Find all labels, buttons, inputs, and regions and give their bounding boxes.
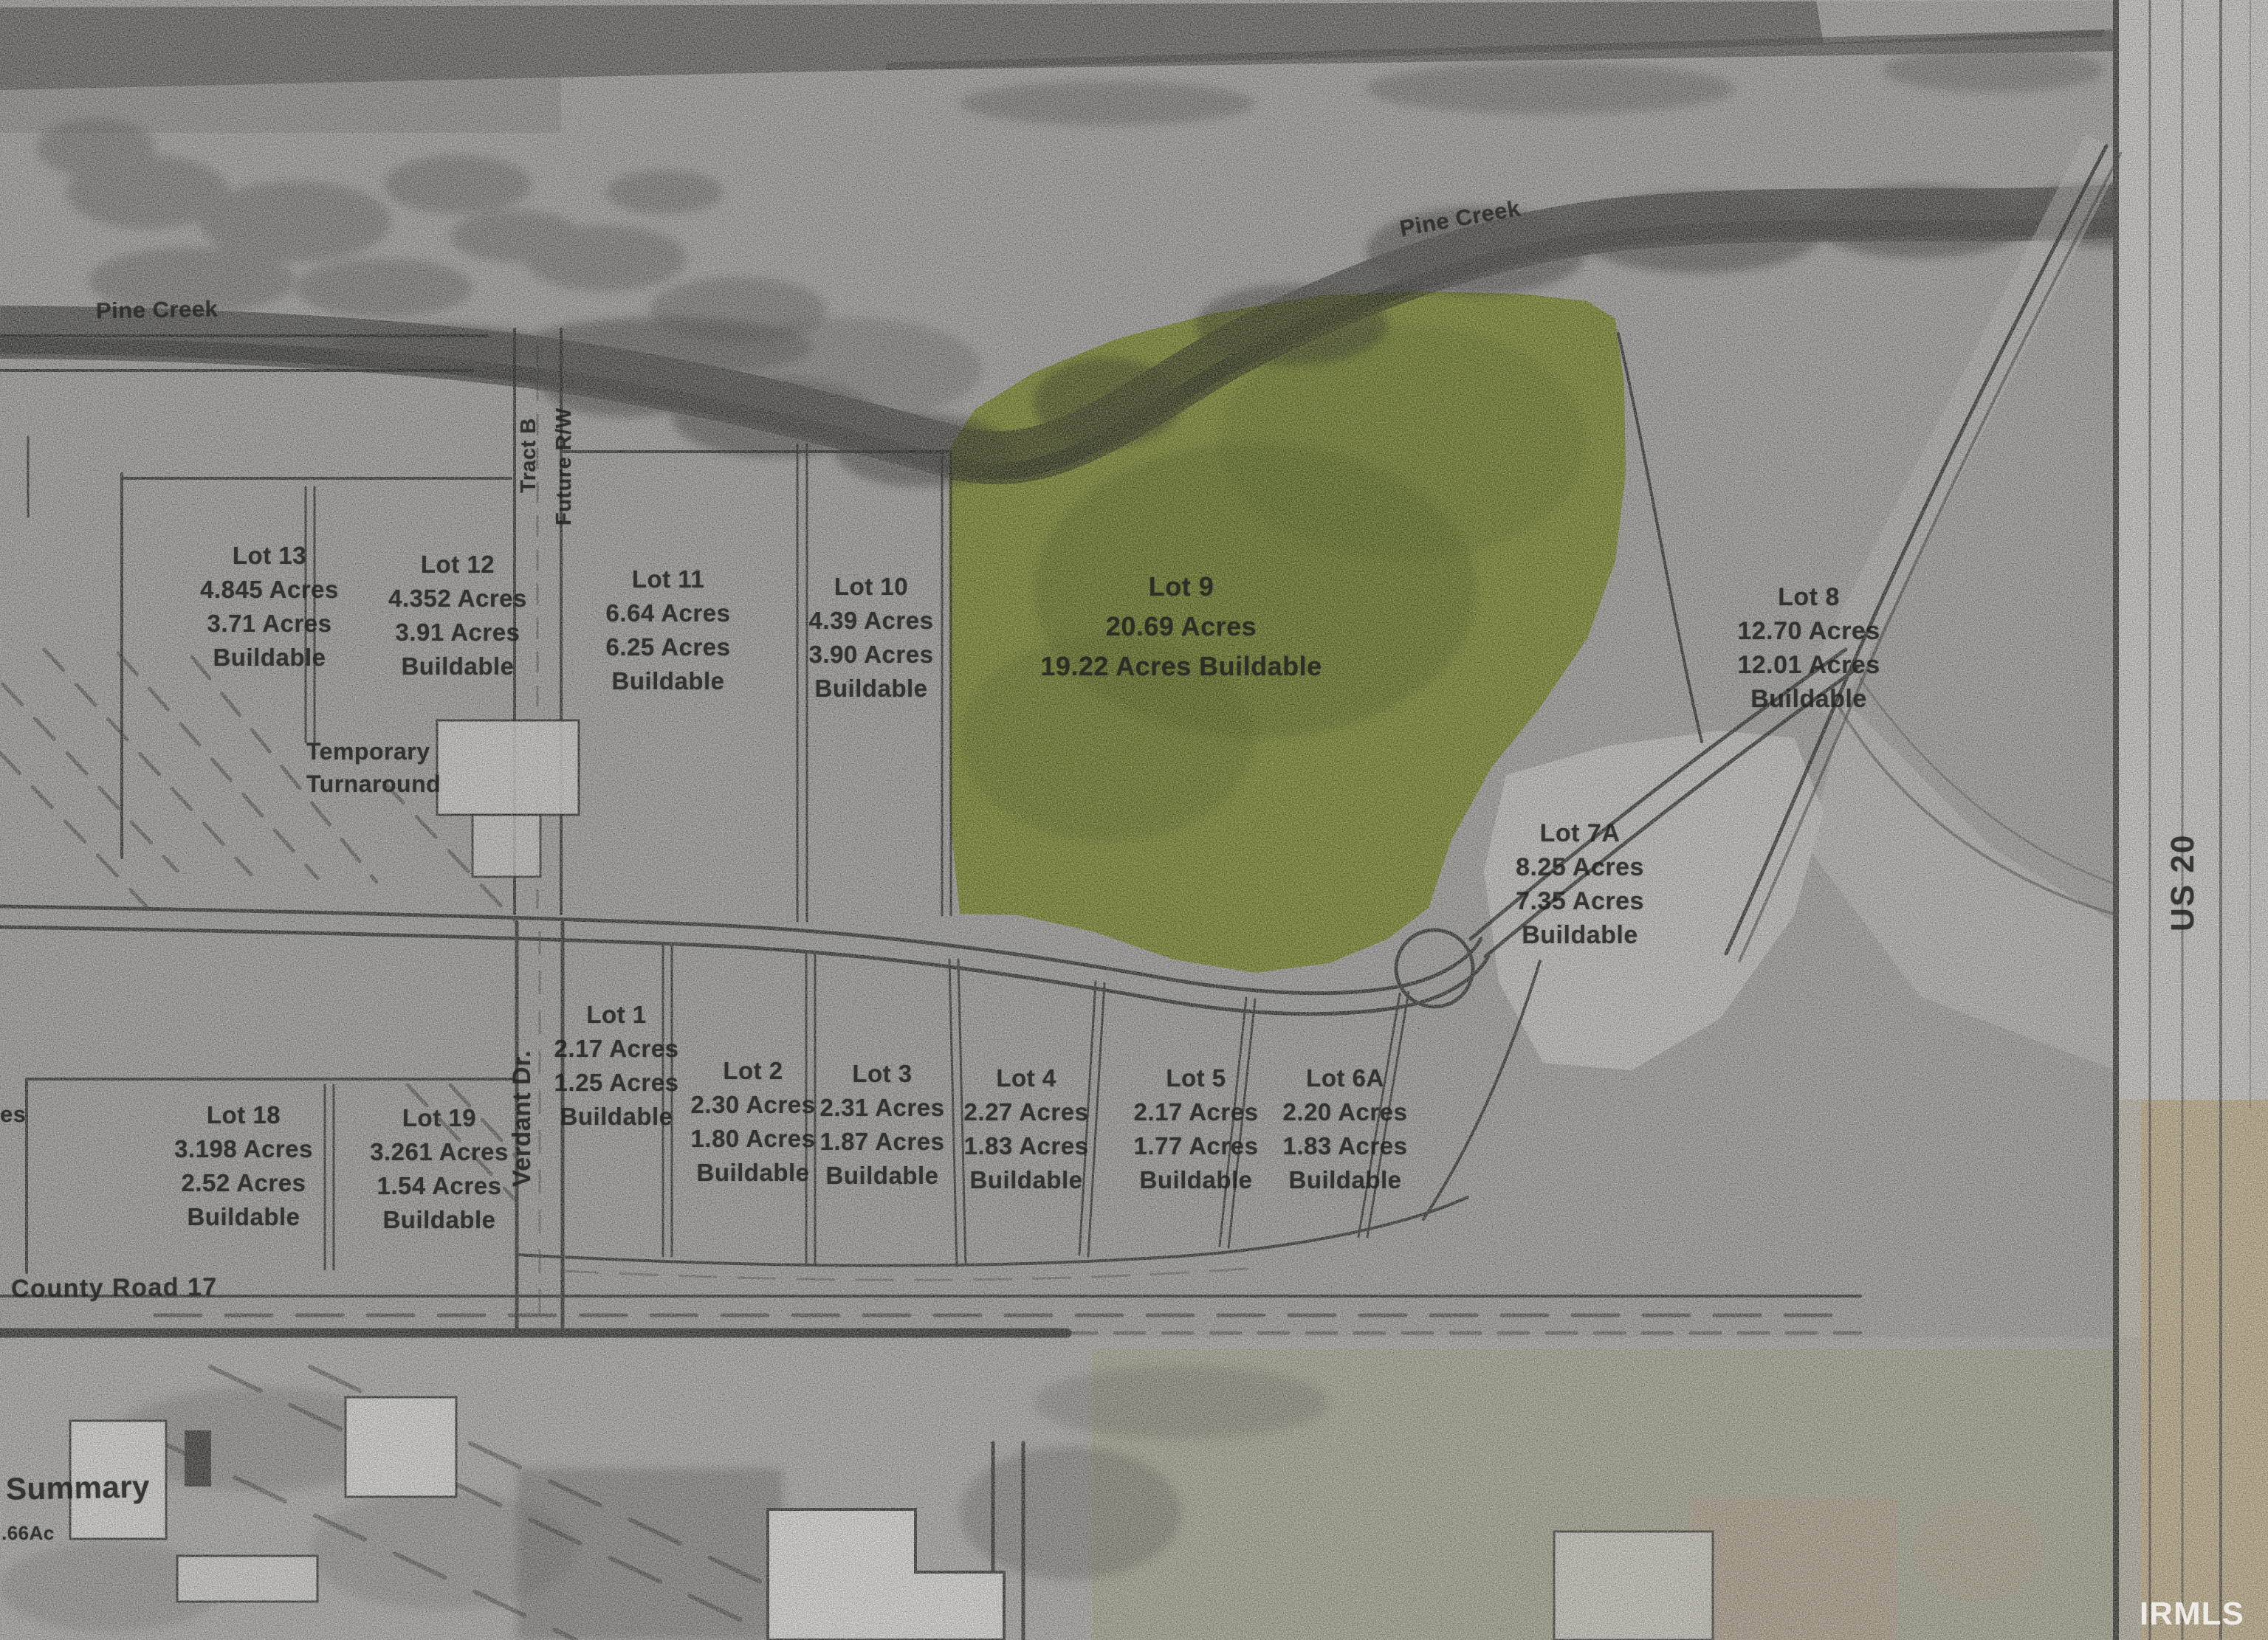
us-20-label: US 20 [2165,834,2202,931]
lot-11-label: Lot 116.64 Acres6.25 AcresBuildable [606,562,731,698]
pine-creek-label-left: Pine Creek [96,296,219,325]
verdant-dr-label: Verdant Dr. [508,1050,537,1187]
lot-7a-label: Lot 7A8.25 Acres7.35 AcresBuildable [1516,816,1644,952]
lot-13-label: Lot 134.845 Acres3.71 AcresBuildable [200,539,339,675]
summary-label: Summary [6,1469,151,1506]
lot-9-label: Lot 920.69 Acres19.22 Acres Buildable [1040,567,1322,686]
lot-2-label: Lot 22.30 Acres1.80 AcresBuildable [691,1054,816,1190]
lot-5-label: Lot 52.17 Acres1.77 AcresBuildable [1134,1061,1259,1197]
summary-acres-label: .66Ac [1,1522,55,1545]
lot-19-label: Lot 193.261 Acres1.54 AcresBuildable [370,1101,509,1237]
lot-6a-label: Lot 6A2.20 Acres1.83 AcresBuildable [1283,1061,1408,1197]
future-rw-label: Future R/W [552,407,577,526]
county-road-17-label: County Road 17 [11,1273,218,1303]
lot-8-label: Lot 812.70 Acres12.01 AcresBuildable [1737,580,1880,716]
lot-1-label: Lot 12.17 Acres1.25 AcresBuildable [554,998,679,1134]
tract-b-label: Tract B [517,418,541,493]
turnaround-line1: Temporary [306,735,441,768]
lot-18-label: Lot 183.198 Acres2.52 AcresBuildable [174,1098,313,1234]
plat-map-drawing [0,0,2268,1640]
lot-3-label: Lot 32.31 Acres1.87 AcresBuildable [820,1057,945,1193]
edge-text-fragment: es [0,1101,26,1128]
lot-4-label: Lot 42.27 Acres1.83 AcresBuildable [964,1061,1089,1197]
turnaround-line2: Turnaround [306,768,441,800]
temporary-turnaround-label: Temporary Turnaround [306,735,441,800]
irmls-watermark: IRMLS [2140,1596,2244,1633]
plat-map-screenshot: { "map": { "creek_label_left": "Pine Cre… [0,0,2268,1640]
lot-10-label: Lot 104.39 Acres3.90 AcresBuildable [809,570,934,706]
lot-12-label: Lot 124.352 Acres3.91 AcresBuildable [388,548,527,683]
